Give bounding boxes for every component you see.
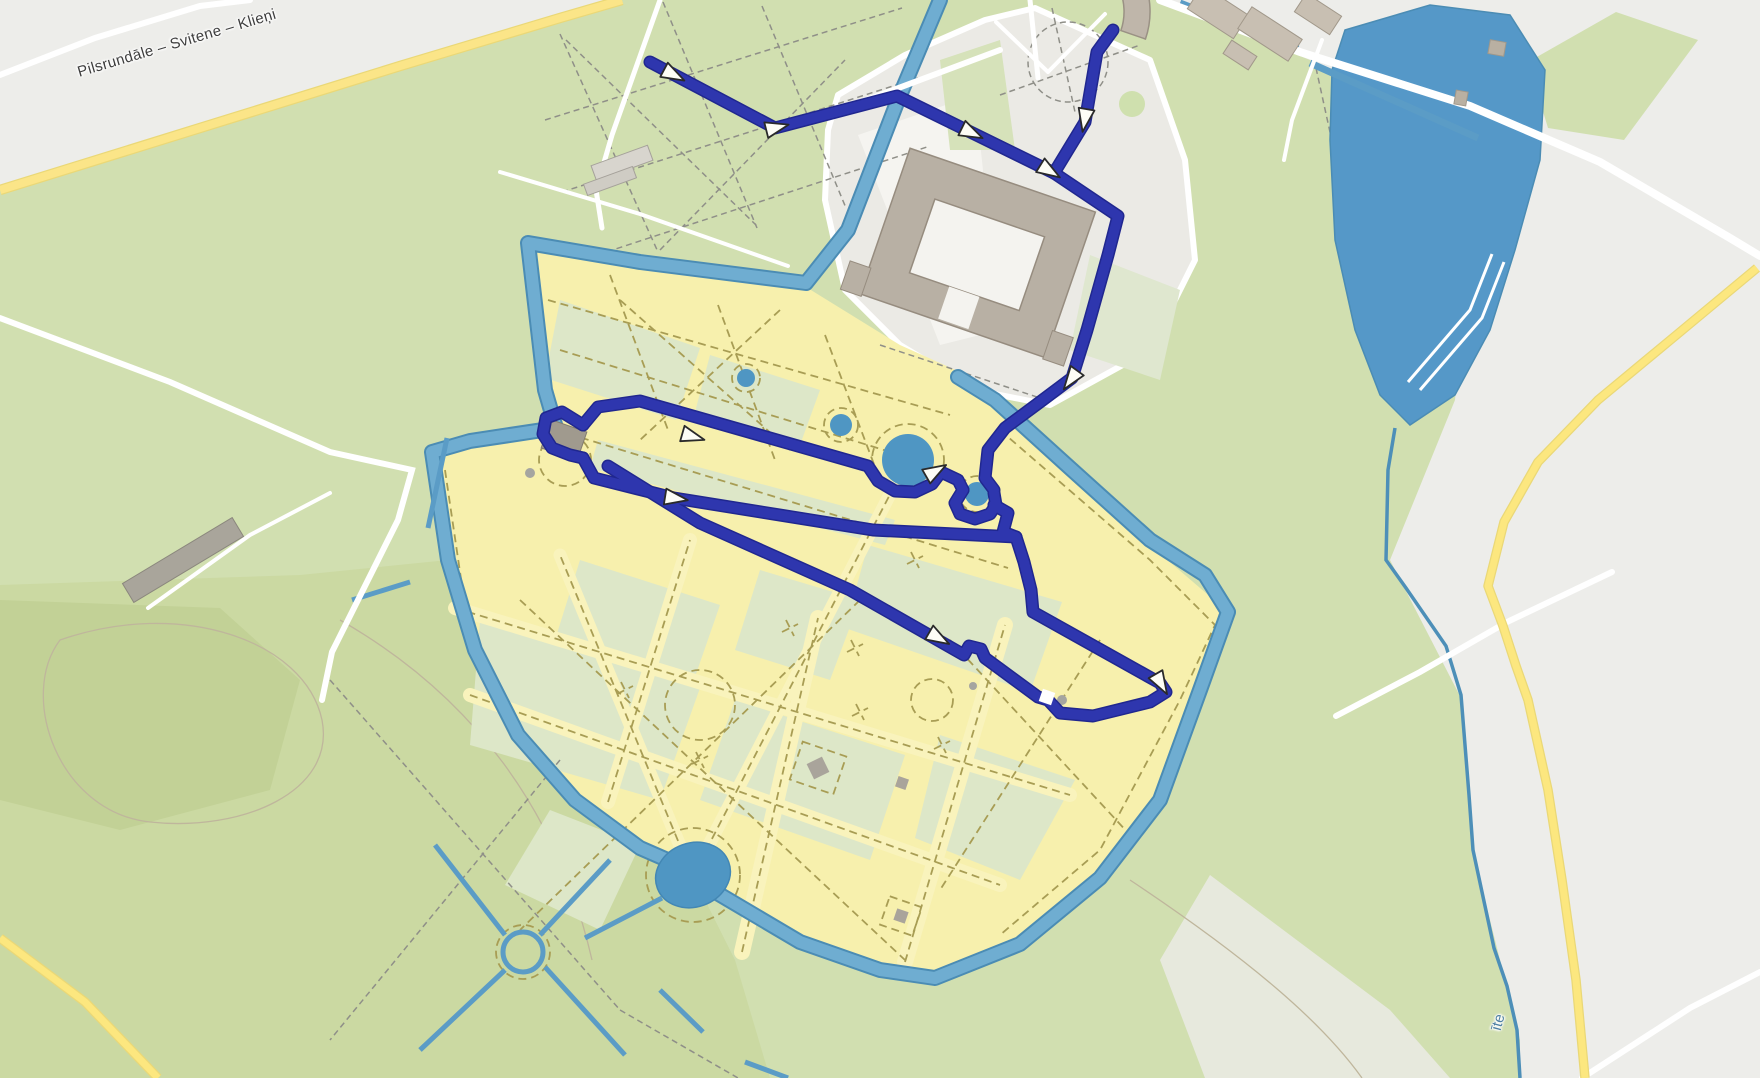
hut-building xyxy=(1488,40,1506,57)
road-white xyxy=(0,0,250,75)
road-yellow-east xyxy=(1488,268,1757,1078)
green-wedge-topright xyxy=(1528,12,1698,140)
hut-building xyxy=(1454,90,1468,106)
garden-pond-small xyxy=(830,414,852,436)
map-viewport[interactable]: Pilsrundāle – Svitene – Klieņi īte xyxy=(0,0,1760,1078)
forecourt-lawn-circle xyxy=(1119,91,1145,117)
garden-statue xyxy=(525,468,535,478)
garden-statue xyxy=(969,682,977,690)
road-white xyxy=(1582,972,1760,1078)
map-canvas[interactable] xyxy=(0,0,1760,1078)
farm-building xyxy=(1294,0,1341,35)
road-yellow-east-casing xyxy=(1488,268,1757,1078)
garden-pond-small xyxy=(737,369,755,387)
